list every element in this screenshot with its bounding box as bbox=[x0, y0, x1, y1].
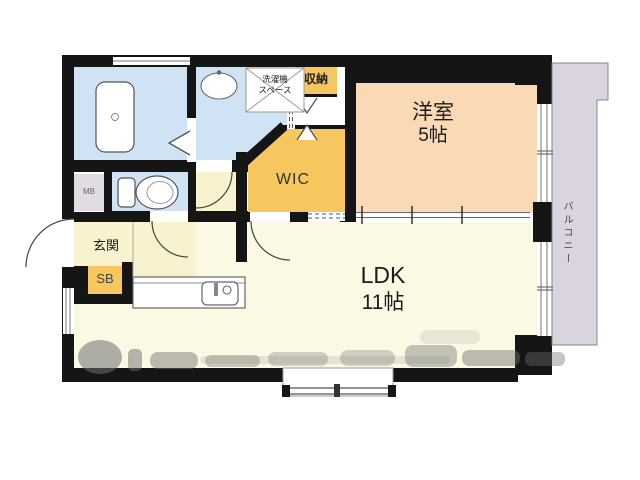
label-balcony: バルコニー bbox=[556, 178, 572, 288]
laundry-line1: 洗濯機 bbox=[262, 74, 288, 84]
label-western-room: 洋室 5帖 bbox=[378, 100, 488, 148]
kitchen-counter bbox=[133, 277, 245, 308]
watermark bbox=[78, 330, 565, 374]
toilet-door-arc bbox=[152, 221, 188, 257]
label-shoe-box: SB bbox=[88, 271, 122, 287]
bay-window bbox=[282, 368, 396, 397]
ldk-size: 11帖 bbox=[328, 290, 438, 315]
western-room-size: 5帖 bbox=[378, 125, 488, 148]
bathtub bbox=[96, 82, 134, 152]
window-ldk-lines bbox=[537, 242, 553, 336]
ldk-door-arc bbox=[251, 221, 290, 260]
label-laundry-space: 洗濯機 スペース bbox=[241, 74, 309, 97]
washroom-door-arc bbox=[196, 172, 232, 208]
ldk-name: LDK bbox=[361, 262, 406, 288]
partition-sliding-doors bbox=[356, 206, 530, 224]
label-wic: WIC bbox=[263, 170, 323, 189]
bath-folding-door bbox=[169, 131, 190, 155]
window-western-lines bbox=[537, 104, 553, 202]
faucet-handle bbox=[214, 283, 218, 296]
toilet bbox=[118, 176, 178, 209]
label-entrance: 玄関 bbox=[80, 238, 132, 254]
label-meter-box: MB bbox=[74, 187, 104, 197]
western-room-name: 洋室 bbox=[412, 101, 454, 124]
label-ldk: LDK 11帖 bbox=[328, 262, 438, 315]
faucet bbox=[223, 286, 231, 294]
floor-plan: 洋室 5帖 LDK 11帖 WIC 収納 洗濯機 スペース 玄関 SB MB バ… bbox=[0, 0, 640, 480]
washbasin bbox=[201, 70, 237, 99]
entrance-door-arc bbox=[26, 219, 74, 267]
wic-sliding-door-dashes bbox=[308, 214, 345, 218]
laundry-line2: スペース bbox=[241, 85, 309, 96]
